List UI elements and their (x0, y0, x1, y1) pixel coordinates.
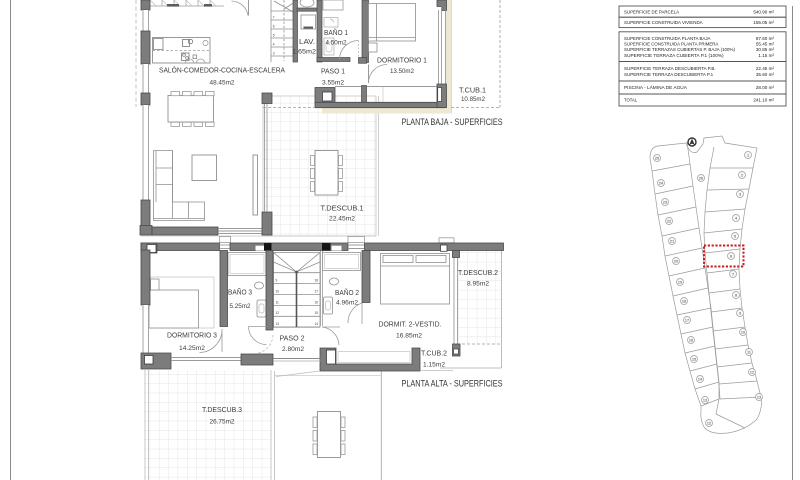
svg-text:14.25m2: 14.25m2 (179, 345, 205, 352)
svg-text:T.DESCUB.3: T.DESCUB.3 (202, 405, 242, 414)
svg-text:11: 11 (276, 300, 280, 304)
svg-text:6: 6 (730, 255, 732, 259)
svg-text:SALÓN-COMEDOR-COCINA-ESCALERA: SALÓN-COMEDOR-COCINA-ESCALERA (159, 66, 285, 75)
svg-text:7: 7 (732, 273, 734, 277)
svg-text:13: 13 (276, 322, 280, 326)
svg-text:10: 10 (741, 331, 745, 335)
svg-text:T.DESCUB.2: T.DESCUB.2 (458, 268, 498, 277)
svg-text:14: 14 (698, 378, 702, 382)
svg-text:540.90 m²: 540.90 m² (753, 9, 774, 14)
svg-text:2.80m2: 2.80m2 (282, 346, 304, 353)
svg-text:PASO 1: PASO 1 (321, 67, 345, 76)
svg-text:28.00 m²: 28.00 m² (756, 85, 775, 90)
svg-text:DORMIT. 2-VESTID.: DORMIT. 2-VESTID. (379, 320, 442, 329)
svg-text:26: 26 (699, 177, 703, 181)
svg-text:15: 15 (692, 358, 696, 362)
svg-text:BAÑO 3: BAÑO 3 (228, 288, 252, 297)
svg-text:TOTAL: TOTAL (624, 98, 637, 103)
svg-text:25: 25 (655, 157, 659, 161)
svg-text:DORMITORIO 1: DORMITORIO 1 (377, 56, 427, 65)
svg-text:4.50m2: 4.50m2 (326, 40, 347, 47)
svg-text:5.25m2: 5.25m2 (230, 303, 251, 310)
svg-text:13.50m2: 13.50m2 (390, 68, 414, 75)
svg-text:T.DESCUB.1: T.DESCUB.1 (321, 204, 364, 213)
svg-text:17: 17 (685, 319, 689, 323)
svg-text:SUPERFICIE TERRAZA CUBIERTA P.: SUPERFICIE TERRAZA CUBIERTA P.1 (100%) (624, 53, 724, 58)
svg-text:19: 19 (678, 281, 682, 285)
svg-text:26.75m2: 26.75m2 (210, 419, 235, 426)
svg-text:48.45m2: 48.45m2 (210, 80, 235, 87)
svg-text:22.45m2: 22.45m2 (329, 216, 355, 223)
svg-text:7: 7 (273, 16, 275, 20)
svg-text:SUPERFICIE TERRAZA DESCUBIERTA: SUPERFICIE TERRAZA DESCUBIERTA P.B. (624, 66, 716, 71)
svg-text:16.85m2: 16.85m2 (396, 333, 422, 340)
svg-text:20: 20 (674, 260, 678, 264)
svg-text:8: 8 (735, 294, 737, 298)
svg-text:PLANTA ALTA - SUPERFICIES: PLANTA ALTA - SUPERFICIES (402, 379, 503, 389)
svg-text:87.60 m²: 87.60 m² (756, 36, 775, 41)
svg-text:30.85 m²: 30.85 m² (756, 47, 775, 52)
svg-text:SUPERFICIE DE PARCELA: SUPERFICIE DE PARCELA (624, 9, 680, 14)
svg-text:6: 6 (273, 25, 275, 29)
svg-text:SUPERFICIE CONSTRUIDA PLANTA B: SUPERFICIE CONSTRUIDA PLANTA BAJA (624, 36, 711, 41)
svg-text:11: 11 (747, 351, 751, 355)
svg-text:9: 9 (739, 312, 741, 316)
svg-text:22.45 m²: 22.45 m² (756, 66, 775, 71)
svg-text:SUPERFICIE TERRAZAS CUBIERTAS: SUPERFICIE TERRAZAS CUBIERTAS P. BAJA (1… (624, 47, 735, 52)
svg-text:155.05 m²: 155.05 m² (753, 20, 774, 25)
svg-text:1.15m2: 1.15m2 (423, 362, 445, 369)
svg-text:SUPERFICIE CONSTRUIDA PLANTA P: SUPERFICIE CONSTRUIDA PLANTA PRIMERA (624, 42, 719, 47)
svg-text:18: 18 (682, 300, 686, 304)
svg-text:13: 13 (703, 399, 707, 403)
svg-text:21: 21 (670, 240, 674, 244)
svg-text:16: 16 (689, 339, 693, 343)
svg-text:15: 15 (315, 311, 319, 315)
svg-text:2: 2 (741, 174, 743, 178)
svg-text:17: 17 (315, 289, 319, 293)
svg-text:12: 12 (707, 422, 711, 426)
svg-text:PASO 2: PASO 2 (280, 334, 305, 343)
svg-text:35.60 m²: 35.60 m² (756, 72, 775, 77)
svg-text:1.65m2: 1.65m2 (292, 49, 316, 56)
svg-text:4: 4 (273, 43, 275, 47)
svg-text:1: 1 (747, 154, 749, 158)
svg-text:18: 18 (315, 279, 319, 283)
svg-text:3: 3 (273, 52, 275, 56)
svg-text:10: 10 (276, 289, 280, 293)
svg-text:10.85m2: 10.85m2 (461, 96, 485, 103)
svg-text:BAÑO 1: BAÑO 1 (324, 28, 348, 37)
svg-text:241.10 m²: 241.10 m² (753, 98, 774, 103)
svg-text:14: 14 (315, 322, 319, 326)
svg-text:5: 5 (273, 34, 275, 38)
svg-text:5: 5 (734, 235, 736, 239)
svg-text:PLANTA BAJA - SUPERFICIES: PLANTA BAJA - SUPERFICIES (402, 117, 503, 127)
svg-text:8.95m2: 8.95m2 (467, 281, 489, 288)
svg-text:DORMITORIO 3: DORMITORIO 3 (167, 331, 217, 340)
svg-text:PISCINA - LÁMINA DE AGUA: PISCINA - LÁMINA DE AGUA (624, 84, 688, 90)
svg-text:BAÑO 2: BAÑO 2 (335, 288, 359, 297)
svg-text:16: 16 (315, 300, 319, 304)
svg-text:SUPERFICIE CONSTRUIDA VIVIENDA: SUPERFICIE CONSTRUIDA VIVIENDA (624, 20, 703, 25)
svg-text:12: 12 (750, 371, 754, 375)
svg-text:24: 24 (659, 182, 663, 186)
svg-text:13: 13 (757, 396, 761, 400)
svg-text:55.45 m²: 55.45 m² (756, 42, 775, 47)
svg-text:1.15 m²: 1.15 m² (758, 53, 774, 58)
svg-text:T.CUB.2: T.CUB.2 (421, 349, 447, 358)
svg-text:4: 4 (735, 217, 737, 221)
svg-text:LAV.: LAV. (299, 37, 315, 46)
svg-text:4.96m2: 4.96m2 (336, 300, 358, 307)
svg-text:9: 9 (276, 279, 278, 283)
svg-text:3.55m2: 3.55m2 (322, 79, 344, 86)
svg-text:12: 12 (276, 311, 280, 315)
svg-text:T.CUB.1: T.CUB.1 (459, 86, 486, 95)
svg-text:23: 23 (663, 201, 667, 205)
svg-text:3: 3 (739, 193, 741, 197)
svg-text:SUPERFICIE TERRAZA DESCUBIERTA: SUPERFICIE TERRAZA DESCUBIERTA P.1 (624, 72, 714, 77)
svg-text:22: 22 (667, 220, 671, 224)
